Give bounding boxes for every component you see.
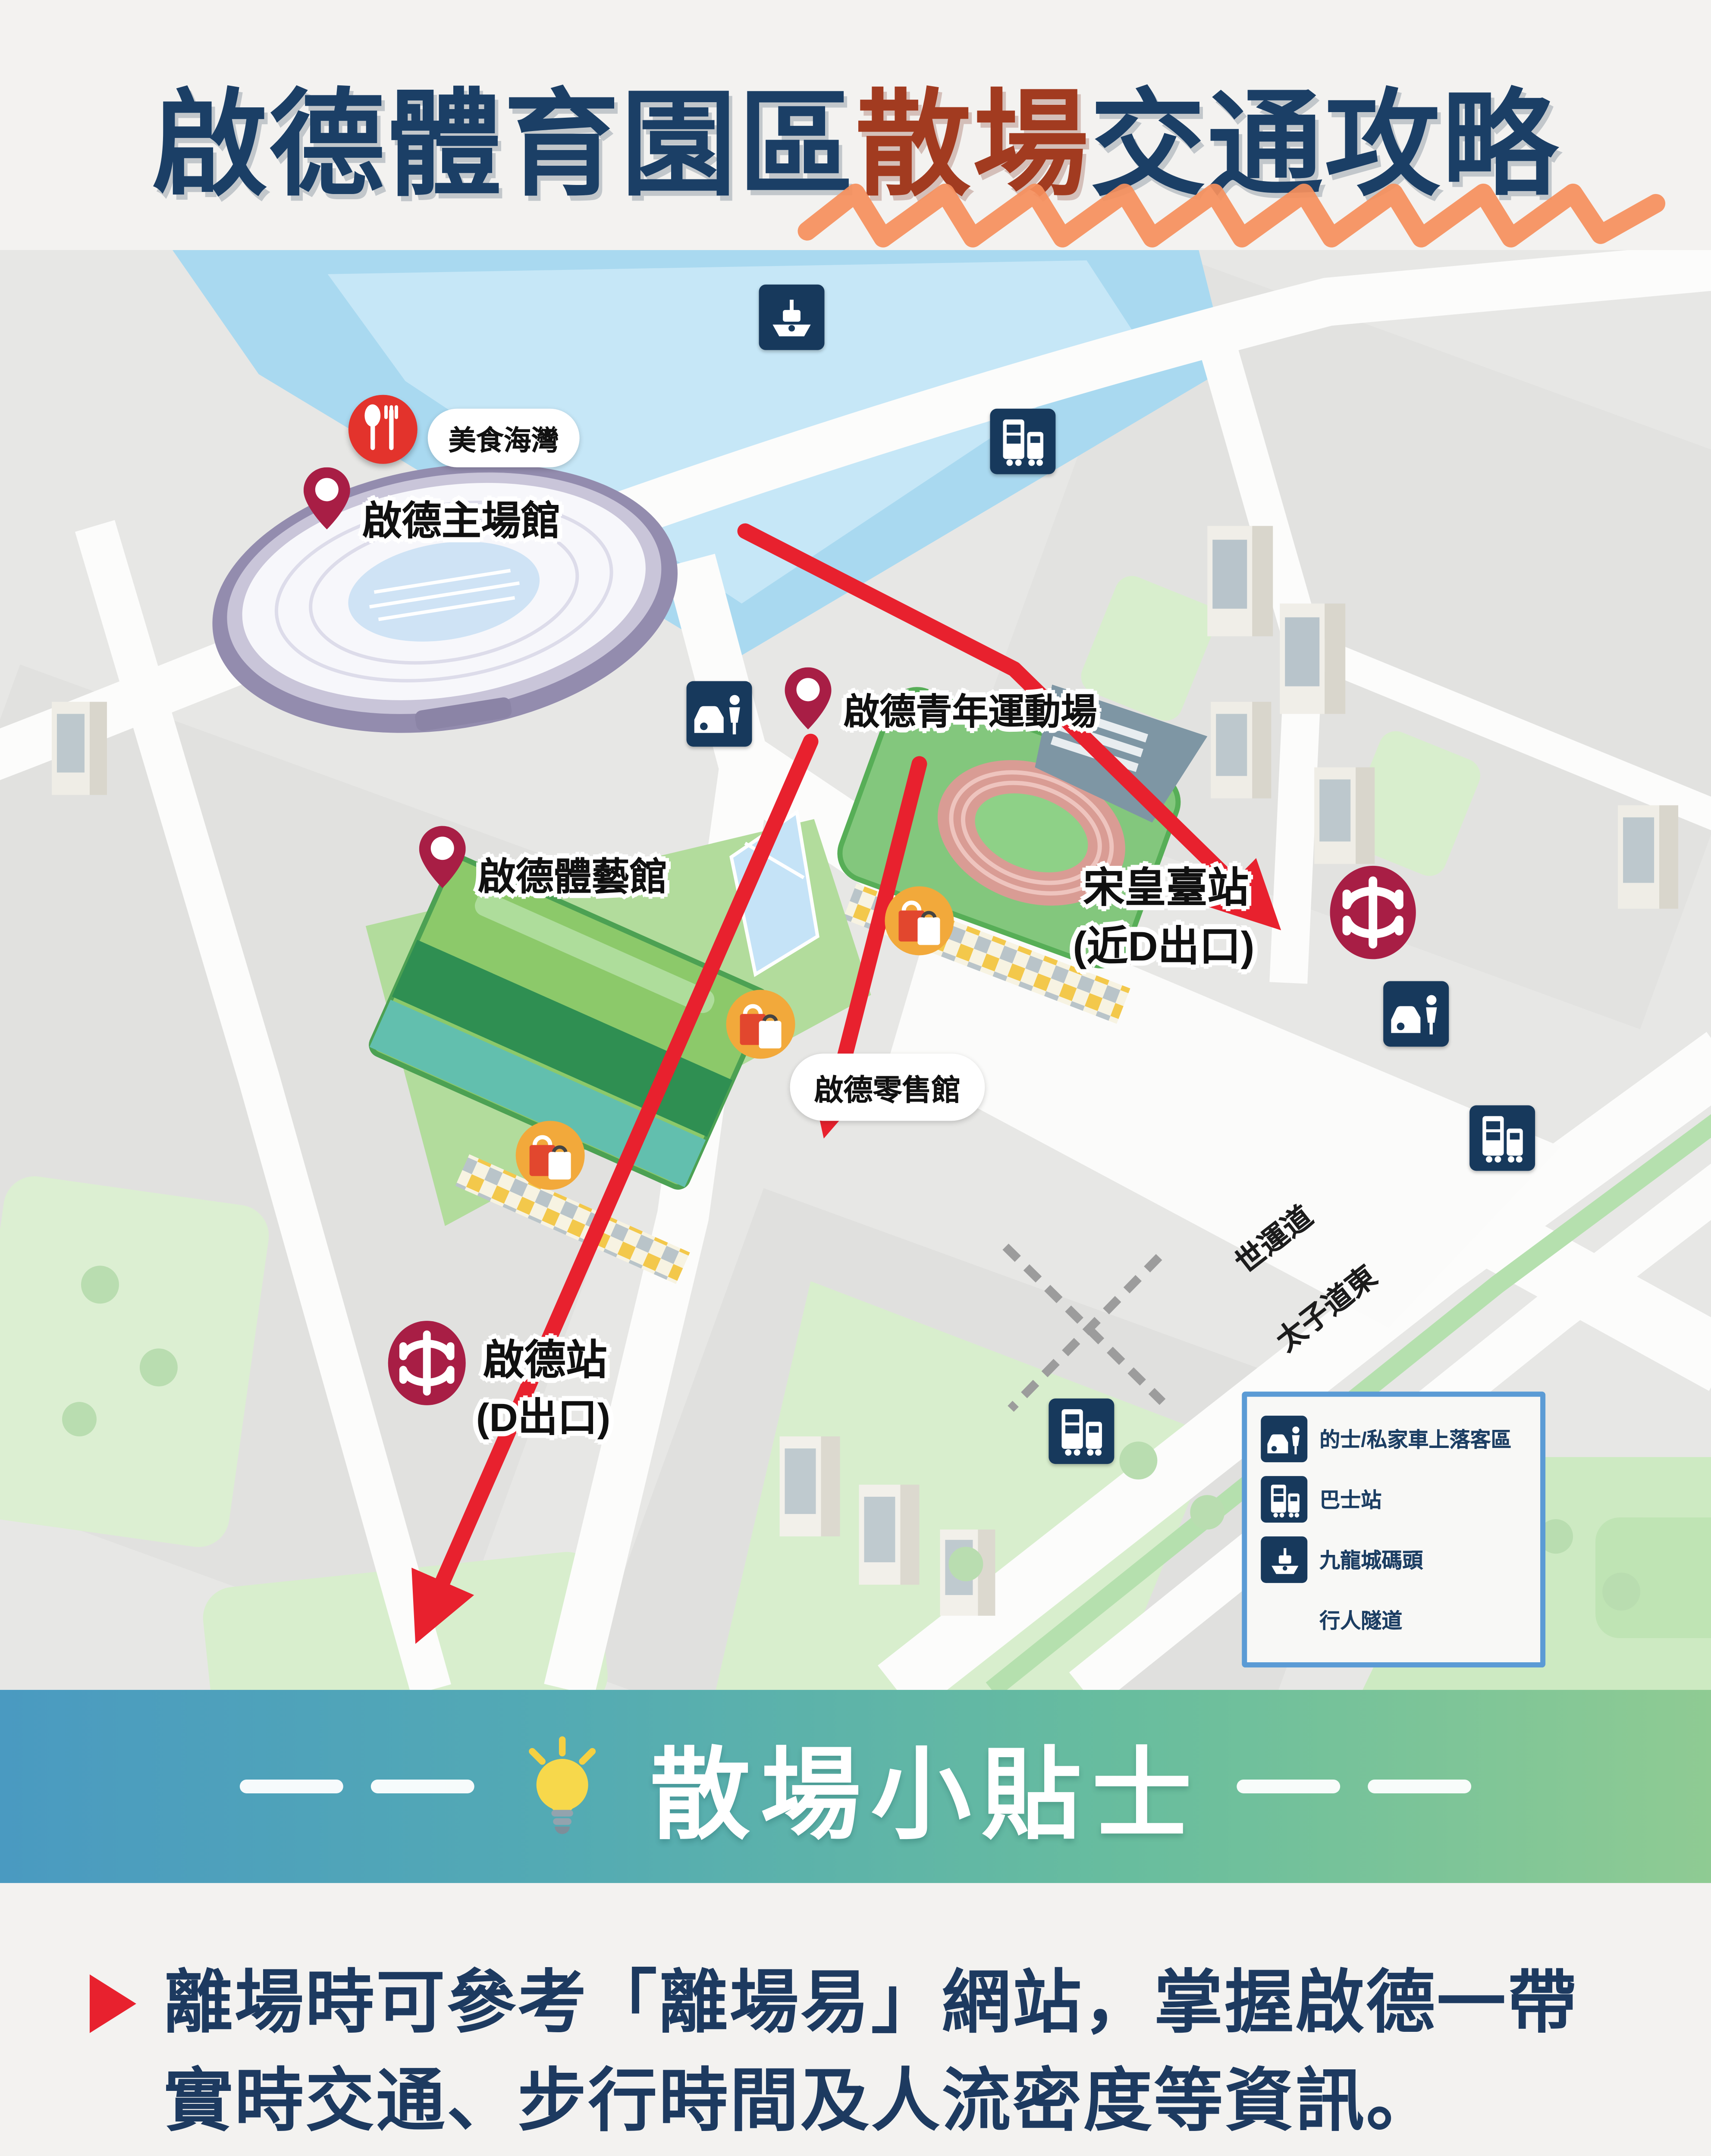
legend-row: 行人隧道	[1261, 1590, 1526, 1650]
taxi-dropoff-icon	[687, 681, 752, 747]
bus-stop-icon	[1049, 1398, 1114, 1464]
taxi-icon	[1261, 1416, 1307, 1462]
bus-stop-icon	[990, 409, 1055, 474]
location-pin-icon	[419, 826, 466, 888]
shopping-bag-icon	[725, 988, 797, 1060]
legend-label: 巴士站	[1319, 1485, 1381, 1514]
retail-hall-label: 啟德零售館	[790, 1053, 985, 1121]
page-title-part1: 啟德體育園區	[152, 81, 856, 210]
legend-label: 的士/私家車上落客區	[1319, 1424, 1511, 1454]
taxi-dropoff-icon	[1383, 981, 1449, 1047]
bus-stop-icon	[1469, 1105, 1535, 1171]
legend-row: 巴士站	[1261, 1469, 1526, 1529]
arena-label: 啟德體藝館	[478, 847, 668, 902]
mtr-logo-icon	[386, 1319, 468, 1405]
transport-map: 美食海灣 啟德主場館 啟德青年運動場 啟德體藝館 啟德零售館 宋皇臺站 (近	[0, 250, 1711, 1690]
tip-item: 離場時可參考「離場易」網站，掌握啟德一帶實時交通、步行時間及人流密度等資訊。	[90, 1955, 1628, 2153]
banner-dash-left	[240, 1780, 474, 1793]
poster: 啟德體育園區散場交通攻略	[0, 0, 1711, 2156]
shopping-bag-icon	[514, 1119, 587, 1191]
legend-label: 九龍城碼頭	[1319, 1545, 1423, 1574]
banner-dash-right	[1237, 1780, 1471, 1793]
location-pin-icon	[785, 667, 832, 730]
map-legend: 的士/私家車上落客區 巴士站 九龍城碼頭 行人隧道	[1242, 1391, 1545, 1667]
mtr-logo-icon	[1328, 864, 1418, 960]
shopping-bag-icon	[883, 884, 955, 957]
legend-row: 九龍城碼頭	[1261, 1529, 1526, 1590]
brush-underline-decoration	[787, 172, 1683, 252]
tips-banner-title: 散場小貼士	[650, 1714, 1202, 1859]
location-pin-icon	[304, 467, 350, 530]
main-stadium-label: 啟德主場館	[362, 488, 561, 547]
tip-text: 離場時可參考「離場易」網站，掌握啟德一帶實時交通、步行時間及人流密度等資訊。	[164, 1955, 1628, 2153]
kai-tak-station-label: 啟德站	[483, 1326, 607, 1386]
ferry-icon	[759, 285, 825, 350]
header: 啟德體育園區散場交通攻略	[0, 0, 1711, 250]
triangle-bullet-icon	[90, 1974, 136, 2033]
sung-wong-toi-station-label: 宋皇臺站	[1083, 854, 1249, 914]
dashed-line-icon	[1261, 1597, 1307, 1643]
lightbulb-icon	[509, 1733, 616, 1840]
tips-section: 離場時可參考「離場易」網站，掌握啟德一帶實時交通、步行時間及人流密度等資訊。 過…	[0, 1883, 1711, 2156]
legend-row: 的士/私家車上落客區	[1261, 1409, 1526, 1469]
youth-sports-ground-label: 啟德青年運動場	[844, 685, 1097, 736]
ferry-icon	[1261, 1536, 1307, 1583]
sung-wong-toi-exit-label: (近D出口)	[1073, 912, 1254, 972]
legend-label: 行人隧道	[1319, 1605, 1402, 1635]
tips-banner: 散場小貼士	[0, 1690, 1711, 1883]
food-bay-label: 美食海灣	[428, 409, 580, 467]
kai-tak-exit-label: (D出口)	[476, 1385, 611, 1443]
utensils-icon	[348, 395, 418, 464]
bus-icon	[1261, 1476, 1307, 1523]
